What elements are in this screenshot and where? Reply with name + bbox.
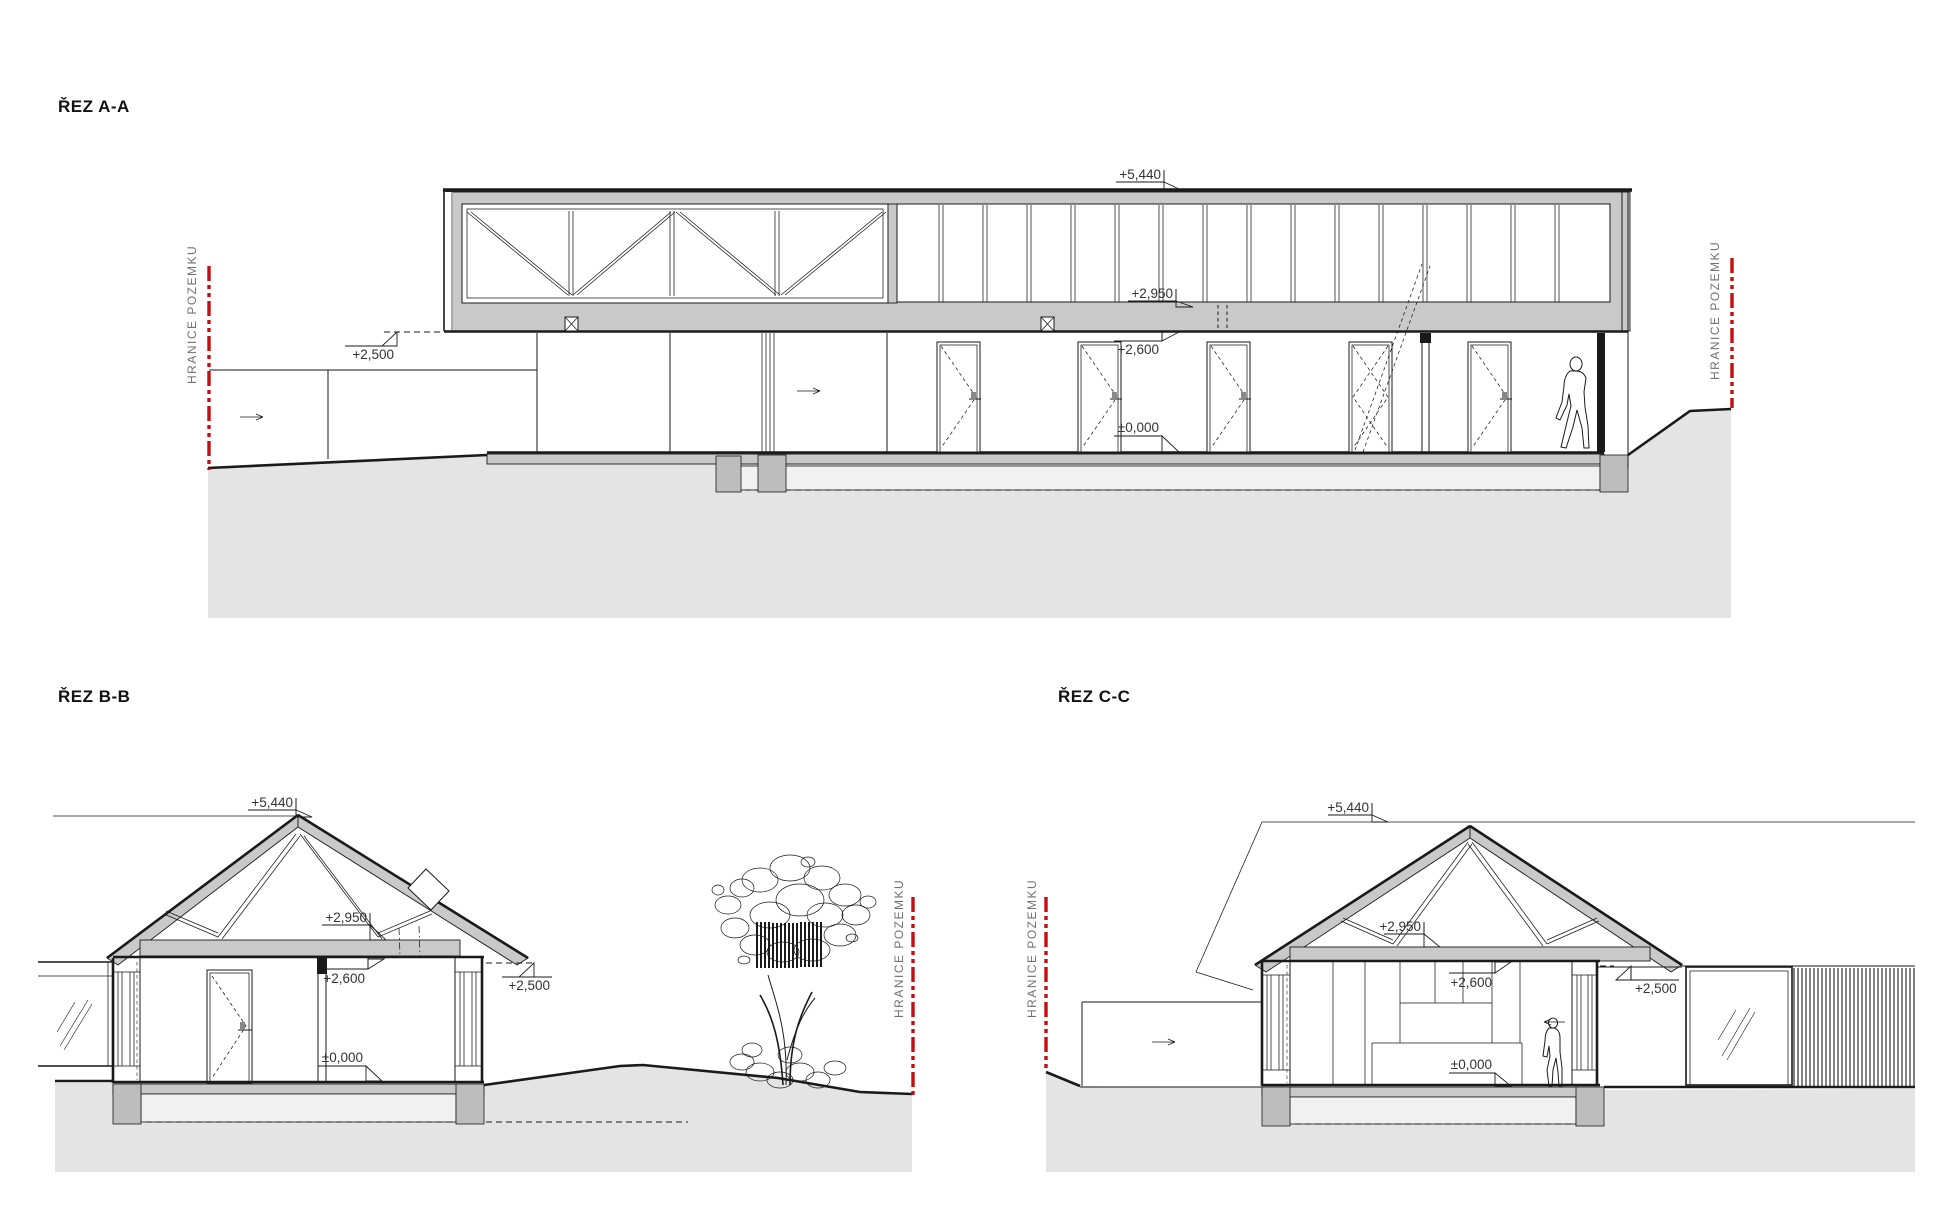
left-wall (113, 958, 140, 1083)
right-wall (1572, 961, 1597, 1086)
slope-arrow (1152, 1039, 1175, 1045)
level-marker-2950: +2,950 (1379, 919, 1440, 947)
level-marker-2500: +2,500 (345, 332, 446, 362)
left-wall (1262, 961, 1290, 1086)
sub-base (1290, 1097, 1576, 1124)
lower-floor-interior (446, 333, 1628, 452)
foundation-pier (1576, 1087, 1604, 1126)
svg-text:±0,000: ±0,000 (322, 1050, 363, 1065)
svg-text:+2,950: +2,950 (325, 910, 367, 925)
boundary-label: HRANICE POZEMKU (1708, 241, 1722, 380)
foundation-pier (1262, 1087, 1290, 1126)
tree (712, 855, 876, 1088)
boundary-label: HRANICE POZEMKU (892, 879, 906, 1018)
foundation-pier (1600, 455, 1628, 492)
section-c-title: ŘEZ C-C (1058, 687, 1130, 706)
tree-trunk (760, 975, 815, 1085)
partition-head (1420, 333, 1431, 343)
foundation-pier (716, 456, 741, 492)
door (937, 342, 981, 452)
right-wall (455, 958, 482, 1083)
svg-text:+5,440: +5,440 (1119, 167, 1161, 182)
svg-text:±0,000: ±0,000 (1451, 1057, 1492, 1072)
svg-text:+2,600: +2,600 (1450, 975, 1492, 990)
stud-panels (897, 204, 1610, 302)
section-b-title: ŘEZ B-B (58, 687, 130, 706)
level-marker-5440: +5,440 (1327, 800, 1388, 822)
slatted-fence (1682, 966, 1915, 1086)
boundary-left: HRANICE POZEMKU (1025, 879, 1046, 1072)
svg-text:+5,440: +5,440 (1327, 800, 1369, 815)
boundary-label: HRANICE POZEMKU (1025, 879, 1039, 1018)
boundary-label: HRANICE POZEMKU (185, 245, 199, 384)
foundation-pier (456, 1084, 484, 1124)
roof-truss (462, 204, 888, 303)
svg-text:+2,500: +2,500 (1635, 981, 1677, 996)
svg-text:+5,440: +5,440 (251, 795, 293, 810)
level-marker-5440: +5,440 (1116, 167, 1181, 190)
svg-text:+2,950: +2,950 (1131, 286, 1173, 301)
level-marker-2500: +2,500 (1600, 966, 1679, 996)
door (1468, 342, 1512, 452)
glass-panel (1686, 967, 1792, 1085)
section-a: ŘEZ A-A (58, 97, 1732, 618)
floor-slab (1262, 1087, 1600, 1097)
svg-text:+2,500: +2,500 (508, 978, 550, 993)
band-divider (888, 204, 897, 303)
boundary-right: HRANICE POZEMKU (1708, 241, 1732, 408)
slope-arrow (240, 414, 263, 420)
glazed-link (38, 962, 113, 1066)
interior (141, 958, 455, 1082)
sub-base (740, 466, 1600, 490)
boundary-right: HRANICE POZEMKU (892, 879, 913, 1095)
foundation-pier (758, 455, 786, 492)
section-a-title: ŘEZ A-A (58, 97, 130, 116)
garden-wall (1082, 1002, 1262, 1086)
boundary-left: HRANICE POZEMKU (185, 245, 209, 470)
level-marker-5440: +5,440 (248, 795, 312, 817)
sub-base (141, 1094, 456, 1122)
section-c: ŘEZ C-C (1025, 687, 1915, 1172)
svg-text:+2,600: +2,600 (323, 971, 365, 986)
drawing-sheet: ŘEZ A-A (0, 0, 1951, 1231)
foundation-pier (113, 1084, 141, 1124)
floor-slab (487, 454, 1604, 464)
door (207, 970, 252, 1083)
level-marker-2500: +2,500 (486, 963, 552, 993)
interior (1290, 961, 1572, 1086)
background-wing-outline (1196, 822, 1262, 990)
svg-text:±0,000: ±0,000 (1118, 420, 1159, 435)
svg-text:+2,600: +2,600 (1117, 342, 1159, 357)
floor-slab (113, 1084, 484, 1094)
door (1207, 342, 1251, 452)
svg-text:+2,500: +2,500 (352, 347, 394, 362)
right-wall (1597, 333, 1605, 452)
svg-text:+2,950: +2,950 (1379, 919, 1421, 934)
section-b: ŘEZ B-B (38, 687, 913, 1172)
roof-truss (1290, 842, 1650, 961)
